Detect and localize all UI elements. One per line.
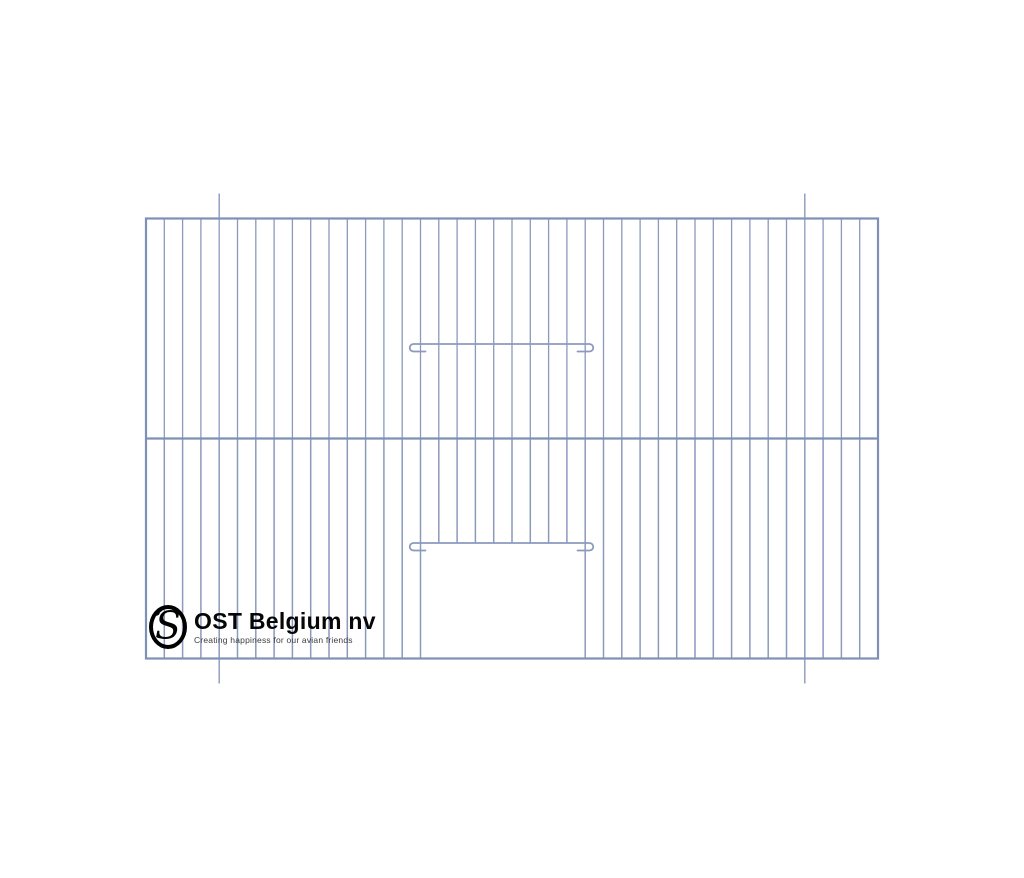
logo-text-block: OST Belgium nv Creating happiness for ou… [194,609,376,645]
bird-icon [153,609,164,617]
cage-front-wire-drawing [0,0,1024,878]
brand-tagline: Creating happiness for our avian friends [194,635,376,645]
product-drawing-canvas: S OST Belgium nv Creating happiness for … [0,0,1024,878]
brand-logo: S OST Belgium nv Creating happiness for … [149,605,376,649]
logo-ring-icon: S [149,605,187,649]
brand-name: OST Belgium nv [194,609,376,633]
